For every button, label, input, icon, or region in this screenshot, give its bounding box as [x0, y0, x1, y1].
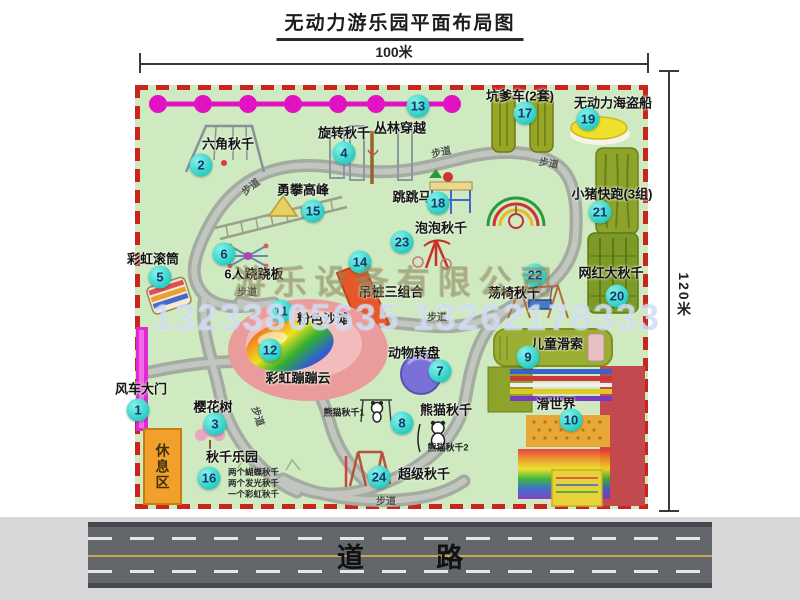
- dimension-tick: [659, 510, 679, 512]
- park-border-left: [135, 85, 140, 509]
- item-label-21: 小猪快跑(3组): [572, 184, 653, 203]
- dimension-tick: [139, 53, 141, 73]
- item-marker-10: 10: [560, 409, 583, 432]
- item-marker-7: 7: [429, 360, 452, 383]
- width-dimension-line: [140, 63, 648, 65]
- width-dimension-label: 100米: [375, 42, 412, 62]
- item-marker-5: 5: [149, 266, 172, 289]
- road-label: 道 路: [88, 527, 712, 583]
- item-label-2: 六角秋千: [202, 134, 254, 153]
- item-marker-12: 12: [259, 339, 282, 362]
- item-marker-1: 1: [127, 399, 150, 422]
- item-label-12: 彩虹蹦蹦云: [265, 368, 330, 387]
- item-marker-16: 16: [198, 467, 221, 490]
- height-dimension-label: 120米: [674, 272, 694, 317]
- company-watermark: 游乐设备有限公司: [232, 255, 560, 303]
- item-label-15: 勇攀高峰: [277, 180, 329, 199]
- item-marker-21: 21: [589, 201, 612, 224]
- height-dimension-line: [668, 70, 670, 512]
- dimension-tick: [659, 70, 679, 72]
- park-border-top: [135, 85, 648, 90]
- item-label-24: 超级秋千: [398, 464, 450, 483]
- item-marker-8: 8: [391, 412, 414, 435]
- item-label-16: 秋千乐园: [206, 447, 258, 466]
- item-marker-4: 4: [333, 142, 356, 165]
- sub-label-2: 熊猫秋千2: [427, 441, 468, 454]
- item-marker-24: 24: [368, 466, 391, 489]
- road: 道 路: [88, 522, 712, 588]
- item-marker-13: 13: [407, 95, 430, 118]
- phone-watermark: 13233805635 13262178333: [152, 297, 661, 339]
- item-label-20: 网红大秋千: [578, 263, 643, 282]
- item-label-13: 丛林穿越: [374, 118, 426, 137]
- item-marker-18: 18: [427, 192, 450, 215]
- item-label-7: 动物转盘: [388, 343, 440, 362]
- item-marker-19: 19: [577, 108, 600, 131]
- item-label-5: 彩虹滚筒: [127, 249, 179, 268]
- walkway-label-7: 步道: [376, 493, 396, 508]
- item-marker-3: 3: [204, 413, 227, 436]
- item-marker-17: 17: [514, 102, 537, 125]
- item-label-8: 熊猫秋千: [420, 400, 472, 419]
- item-note-16-3: 一个彩虹秋千: [228, 488, 279, 500]
- page-title: 无动力游乐园平面布局图: [276, 8, 523, 41]
- walkway-label-3: 步道: [538, 153, 560, 171]
- item-label-23: 泡泡秋千: [415, 218, 467, 237]
- item-marker-9: 9: [517, 346, 540, 369]
- sub-label-1: 熊猫秋千1: [323, 406, 364, 419]
- rest-area: 休息区: [143, 428, 182, 505]
- park-plan-canvas: 无动力游乐园平面布局图 100米 120米: [0, 0, 800, 600]
- item-label-1: 风车大门: [115, 379, 167, 398]
- dimension-tick: [647, 53, 649, 73]
- item-marker-2: 2: [190, 154, 213, 177]
- item-label-4: 旋转秋千: [318, 123, 370, 142]
- item-marker-23: 23: [391, 231, 414, 254]
- item-marker-15: 15: [302, 200, 325, 223]
